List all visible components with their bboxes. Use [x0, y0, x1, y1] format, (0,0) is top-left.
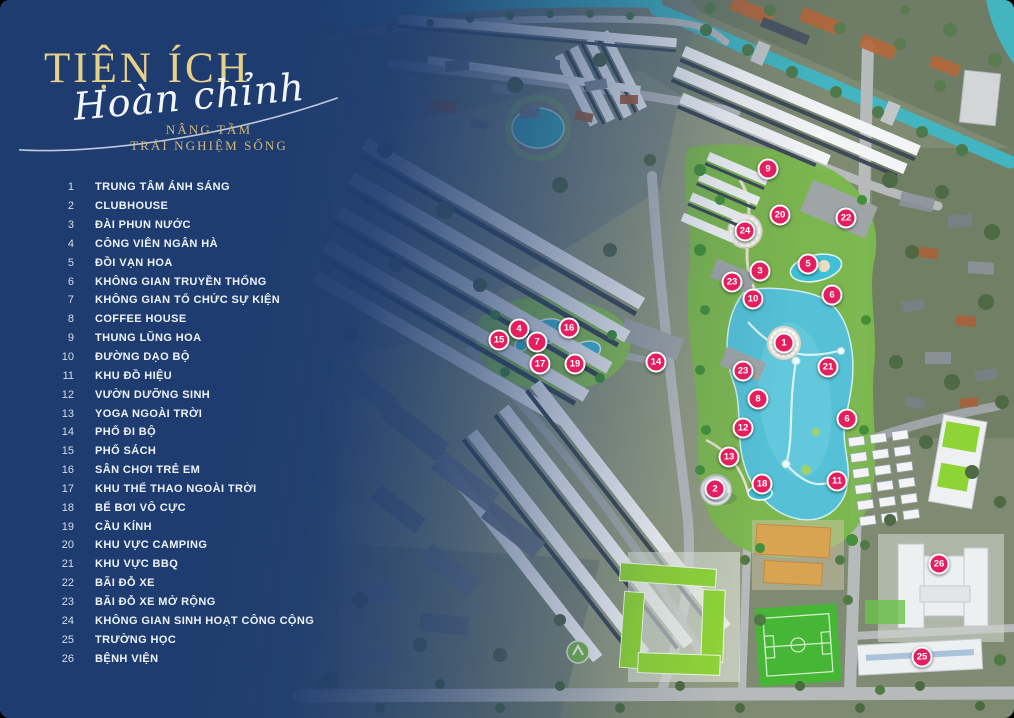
legend-item-label: BÃI ĐỖ XE MỞ RỘNG — [95, 596, 216, 608]
legend-item-label: CẦU KÍNH — [95, 521, 152, 533]
legend-item-label: SÂN CHƠI TRẺ EM — [95, 464, 200, 476]
legend-item: 7KHÔNG GIAN TỔ CHỨC SỰ KIỆN — [40, 291, 314, 310]
legend-item: 17KHU THỂ THAO NGOÀI TRỜI — [40, 480, 314, 499]
legend-item: 23BÃI ĐỖ XE MỞ RỘNG — [40, 593, 314, 612]
legend-item: 5ĐỒI VẠN HOA — [40, 253, 314, 272]
legend-item: 11KHU ĐỒ HIỆU — [40, 366, 314, 385]
legend-item-number: 19 — [40, 521, 74, 533]
map-marker-21: 21 — [818, 357, 839, 378]
map-marker-24: 24 — [735, 221, 756, 242]
map-marker-18: 18 — [752, 474, 773, 495]
legend-item-label: PHỐ ĐI BỘ — [95, 426, 156, 438]
map-marker-10: 10 — [743, 289, 764, 310]
map-marker-14: 14 — [646, 352, 667, 373]
tagline-line-2: TRẢI NGHIỆM SỐNG — [118, 138, 300, 154]
map-marker-1: 1 — [774, 333, 795, 354]
legend-item-label: KHU THỂ THAO NGOÀI TRỜI — [95, 483, 257, 495]
legend-item-label: KHÔNG GIAN TRUYỀN THỐNG — [95, 276, 267, 288]
legend-list: 1TRUNG TÂM ÁNH SÁNG2CLUBHOUSE3ĐÀI PHUN N… — [40, 178, 314, 668]
map-marker-6: 6 — [822, 285, 843, 306]
map-marker-3: 3 — [750, 261, 771, 282]
legend-item-number: 17 — [40, 483, 74, 495]
legend-item-number: 4 — [40, 238, 74, 250]
map-marker-6: 6 — [837, 409, 858, 430]
legend-item-label: KHU VỰC BBQ — [95, 558, 178, 570]
legend-item-label: PHỐ SÁCH — [95, 445, 156, 457]
legend-item-label: YOGA NGOÀI TRỜI — [95, 408, 202, 420]
legend-item-label: KHÔNG GIAN TỔ CHỨC SỰ KIỆN — [95, 294, 280, 306]
legend-item: 20KHU VỰC CAMPING — [40, 536, 314, 555]
legend-item-number: 20 — [40, 539, 74, 551]
legend-item: 2CLUBHOUSE — [40, 197, 314, 216]
legend-item-label: KHU VỰC CAMPING — [95, 539, 207, 551]
legend-item-label: BỆNH VIỆN — [95, 653, 159, 665]
legend-item: 26BỆNH VIỆN — [40, 649, 314, 668]
map-marker-8: 8 — [748, 389, 769, 410]
legend-item-label: ĐỒI VẠN HOA — [95, 257, 173, 269]
legend-item: 13YOGA NGOÀI TRỜI — [40, 404, 314, 423]
legend-item: 12VƯỜN DƯỠNG SINH — [40, 385, 314, 404]
map-marker-25: 25 — [912, 647, 933, 668]
legend-item-label: VƯỜN DƯỠNG SINH — [95, 389, 210, 401]
legend-item: 21KHU VỰC BBQ — [40, 555, 314, 574]
legend-item-label: CÔNG VIÊN NGÂN HÀ — [95, 238, 218, 250]
legend-item-number: 1 — [40, 181, 74, 193]
legend-item-label: CLUBHOUSE — [95, 200, 168, 212]
map-marker-13: 13 — [719, 447, 740, 468]
legend-item-number: 13 — [40, 408, 74, 420]
map-marker-12: 12 — [733, 418, 754, 439]
legend-item-number: 12 — [40, 389, 74, 401]
legend-item-number: 9 — [40, 332, 74, 344]
legend-item-number: 10 — [40, 351, 74, 363]
legend-panel: TIỆN ÍCH Hoàn chỉnh NÂNG TẦM TRẢI NGHIỆM… — [0, 0, 640, 718]
tagline-line-1: NÂNG TẦM — [118, 122, 300, 138]
map-marker-20: 20 — [770, 205, 791, 226]
legend-item: 3ĐÀI PHUN NƯỚC — [40, 216, 314, 235]
legend-item-label: BÃI ĐỖ XE — [95, 577, 155, 589]
map-marker-26: 26 — [929, 554, 950, 575]
legend-item-label: KHÔNG GIAN SINH HOẠT CÔNG CỘNG — [95, 615, 314, 627]
legend-item: 10ĐƯỜNG DẠO BỘ — [40, 348, 314, 367]
legend-item-number: 15 — [40, 445, 74, 457]
legend-item-label: BỂ BƠI VÔ CỰC — [95, 502, 186, 514]
legend-item-number: 25 — [40, 634, 74, 646]
legend-item-label: COFFEE HOUSE — [95, 313, 187, 325]
map-marker-22: 22 — [836, 208, 857, 229]
legend-item-number: 8 — [40, 313, 74, 325]
legend-item-number: 18 — [40, 502, 74, 514]
legend-item: 14PHỐ ĐI BỘ — [40, 423, 314, 442]
poster-tagline: NÂNG TẦM TRẢI NGHIỆM SỐNG — [118, 122, 300, 153]
legend-item-label: KHU ĐỒ HIỆU — [95, 370, 172, 382]
legend-item-number: 5 — [40, 257, 74, 269]
map-marker-11: 11 — [827, 471, 848, 492]
legend-item: 22BÃI ĐỖ XE — [40, 574, 314, 593]
legend-item: 6KHÔNG GIAN TRUYỀN THỐNG — [40, 272, 314, 291]
map-marker-2: 2 — [705, 479, 726, 500]
legend-item: 15PHỐ SÁCH — [40, 442, 314, 461]
legend-item-number: 3 — [40, 219, 74, 231]
legend-item-label: ĐÀI PHUN NƯỚC — [95, 219, 191, 231]
legend-item-number: 14 — [40, 426, 74, 438]
legend-item: 25TRƯỜNG HỌC — [40, 630, 314, 649]
legend-item: 8COFFEE HOUSE — [40, 310, 314, 329]
legend-item: 18BỂ BƠI VÔ CỰC — [40, 498, 314, 517]
map-marker-23: 23 — [733, 361, 754, 382]
map-marker-5: 5 — [798, 254, 819, 275]
legend-item-number: 16 — [40, 464, 74, 476]
legend-item-number: 6 — [40, 276, 74, 288]
legend-item-number: 24 — [40, 615, 74, 627]
legend-item-number: 26 — [40, 653, 74, 665]
legend-item-number: 11 — [40, 370, 74, 382]
legend-item: 24KHÔNG GIAN SINH HOẠT CÔNG CỘNG — [40, 611, 314, 630]
legend-item-label: TRUNG TÂM ÁNH SÁNG — [95, 181, 230, 193]
map-marker-23: 23 — [722, 272, 743, 293]
legend-item-label: ĐƯỜNG DẠO BỘ — [95, 351, 190, 363]
map-marker-9: 9 — [758, 159, 779, 180]
legend-item-label: THUNG LŨNG HOA — [95, 332, 201, 344]
legend-item: 9THUNG LŨNG HOA — [40, 329, 314, 348]
legend-item-number: 2 — [40, 200, 74, 212]
legend-item: 16SÂN CHƠI TRẺ EM — [40, 461, 314, 480]
legend-item: 4CÔNG VIÊN NGÂN HÀ — [40, 235, 314, 254]
legend-item-label: TRƯỜNG HỌC — [95, 634, 176, 646]
legend-item: 1TRUNG TÂM ÁNH SÁNG — [40, 178, 314, 197]
legend-item-number: 7 — [40, 294, 74, 306]
legend-item-number: 22 — [40, 577, 74, 589]
masterplan-poster: 1234566789101112131415161718192021222323… — [0, 0, 1014, 718]
legend-item-number: 23 — [40, 596, 74, 608]
legend-item: 19CẦU KÍNH — [40, 517, 314, 536]
legend-item-number: 21 — [40, 558, 74, 570]
